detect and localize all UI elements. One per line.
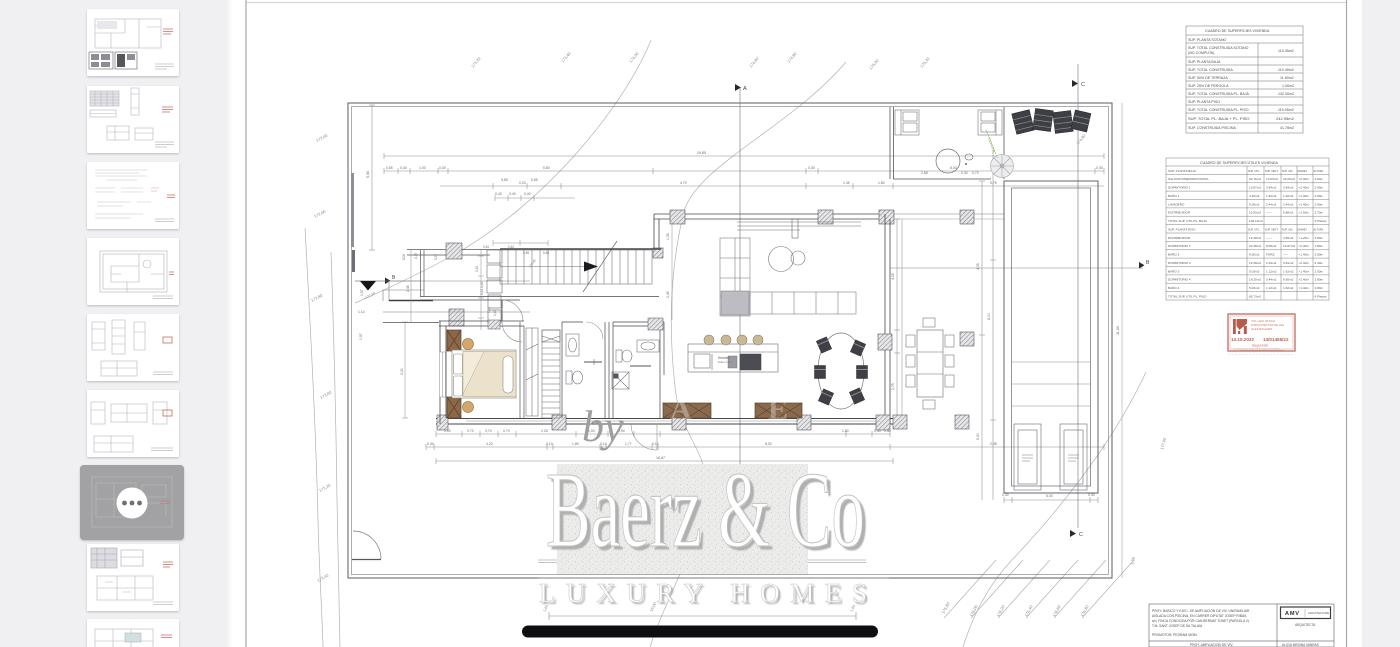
- svg-text:SUP. TOTAL PL. BAJA + PL. PISO: SUP. TOTAL PL. BAJA + PL. PISO: [1188, 116, 1249, 121]
- svg-text:LUXURY HOMES: LUXURY HOMES: [541, 580, 869, 610]
- svg-text:TOTAL SUP. UTIL PL. BAJA: TOTAL SUP. UTIL PL. BAJA: [1168, 219, 1208, 223]
- svg-text:C: C: [1079, 532, 1083, 538]
- svg-text:------: ------: [1266, 236, 1272, 240]
- svg-text:0,40: 0,40: [495, 192, 502, 196]
- svg-text:8,00: 8,00: [987, 313, 991, 320]
- svg-text:1.80m: 1.80m: [1315, 244, 1324, 248]
- svg-text:SUP. UTIL: SUP. UTIL: [1248, 228, 1260, 231]
- svg-text:2.80m: 2.80m: [1315, 186, 1324, 190]
- svg-text:2,33: 2,33: [541, 429, 548, 433]
- svg-text:5,75: 5,75: [990, 181, 997, 185]
- svg-text:5,85: 5,85: [523, 251, 529, 255]
- svg-text:0,70: 0,70: [467, 429, 474, 433]
- svg-text:by: by: [582, 402, 624, 451]
- svg-text:174,80: 174,80: [786, 50, 798, 63]
- svg-text:1.12m2: 1.12m2: [1266, 269, 1277, 273]
- svg-text:103.14m2: 103.14m2: [1249, 219, 1263, 223]
- svg-text:------: ------: [1266, 211, 1272, 215]
- svg-text:8,30: 8,30: [765, 442, 772, 446]
- svg-text:3.84m2: 3.84m2: [1283, 186, 1294, 190]
- svg-text:PROY: BASICO Y EJEC. DE AMPLIA: PROY: BASICO Y EJEC. DE AMPLIACION DE VI…: [1152, 609, 1250, 613]
- svg-text:BAÑO 4: BAÑO 4: [1168, 285, 1180, 290]
- svg-text:DISTRIBUIDOR: DISTRIBUIDOR: [1168, 236, 1191, 240]
- svg-text:>1.40m: >1.40m: [1299, 194, 1310, 198]
- svg-text:SALON/COMEDOR/COCINA: SALON/COMEDOR/COCINA: [1168, 177, 1209, 181]
- svg-text:0,10: 0,10: [652, 442, 659, 446]
- svg-text:1,35: 1,35: [1129, 556, 1136, 566]
- svg-text:BAÑO 1: BAÑO 1: [1168, 193, 1180, 198]
- svg-text:175,20: 175,20: [919, 55, 931, 68]
- svg-text:>2.40m: >2.40m: [1299, 244, 1310, 248]
- svg-text:>2.40m: >2.40m: [1299, 278, 1310, 282]
- svg-text:SUP. ILM.: SUP. ILM.: [1282, 228, 1293, 231]
- svg-text:koken 3.6m: koken 3.6m: [718, 360, 731, 364]
- svg-text:13.93m2: 13.93m2: [1266, 177, 1278, 181]
- svg-text:85.73m2: 85.73m2: [1249, 294, 1261, 298]
- svg-text:ILLES BALEARS: ILLES BALEARS: [1251, 327, 1272, 331]
- svg-text:23.20m2: 23.20m2: [1283, 177, 1295, 181]
- svg-text:177,00: 177,00: [1159, 436, 1167, 450]
- svg-text:0,24 0,40: 0,24 0,40: [480, 281, 484, 295]
- svg-text:2,40: 2,40: [493, 310, 497, 316]
- svg-text:DIAMET: DIAMET: [1298, 170, 1308, 173]
- svg-text:1,35: 1,35: [666, 233, 670, 240]
- svg-text:0,55: 0,55: [386, 166, 393, 170]
- svg-text:ESCALERA: ESCALERA: [987, 137, 996, 153]
- svg-text:DORMITORIO 3: DORMITORIO 3: [1168, 261, 1191, 265]
- svg-text:172,60: 172,60: [313, 208, 327, 219]
- svg-text:4.59m2: 4.59m2: [1283, 236, 1294, 240]
- svg-text:E: E: [768, 393, 788, 426]
- svg-text:19,85: 19,85: [697, 151, 706, 155]
- svg-text:0,57: 0,57: [359, 333, 363, 340]
- svg-text:0,57: 0,57: [360, 289, 364, 296]
- svg-text:DIAMET: DIAMET: [1298, 228, 1308, 231]
- svg-text:11.90m2: 11.90m2: [1280, 76, 1294, 80]
- svg-text:2.80m: 2.80m: [1315, 278, 1324, 282]
- svg-text:3.44m2: 3.44m2: [1266, 278, 1277, 282]
- svg-text:Baerz & Co: Baerz & Co: [546, 451, 865, 570]
- svg-text:110.35m2: 110.35m2: [1278, 49, 1294, 53]
- svg-text:4,35: 4,35: [891, 273, 895, 280]
- svg-text:SUP. PLANTA PISO: SUP. PLANTA PISO: [1168, 227, 1196, 231]
- svg-text:1.62m2: 1.62m2: [1266, 194, 1277, 198]
- svg-text:173,20: 173,20: [470, 55, 482, 68]
- svg-text:6 Plazas: 6 Plazas: [1315, 294, 1327, 298]
- svg-text:5,85: 5,85: [501, 178, 508, 182]
- svg-text:2.24m2: 2.24m2: [1266, 261, 1277, 265]
- svg-text:1,80: 1,80: [572, 442, 579, 446]
- svg-text:2.80m: 2.80m: [1315, 286, 1324, 290]
- svg-text:4.29m2: 4.29m2: [1249, 194, 1260, 198]
- svg-text:1,51: 1,51: [487, 307, 491, 313]
- svg-text:8,30: 8,30: [950, 166, 957, 170]
- svg-text:2,68: 2,68: [921, 171, 928, 175]
- svg-text:0,30: 0,30: [961, 171, 968, 175]
- svg-text:13.10.2022: 13.10.2022: [1231, 337, 1254, 342]
- svg-text:8.05m2: 8.05m2: [1249, 253, 1260, 257]
- svg-text:110.05m2: 110.05m2: [1278, 108, 1294, 112]
- svg-text:0,70: 0,70: [503, 429, 510, 433]
- svg-text:TOTAL SUP. UTIL PL. PISO: TOTAL SUP. UTIL PL. PISO: [1168, 294, 1207, 298]
- svg-text:2.70m: 2.70m: [1315, 211, 1324, 215]
- svg-text:1.62m2: 1.62m2: [1283, 194, 1294, 198]
- svg-text:B: B: [392, 275, 396, 281]
- svg-text:173,00: 173,00: [319, 389, 333, 400]
- svg-text:0,30: 0,30: [439, 166, 446, 170]
- svg-text:>1.25m: >1.25m: [1299, 236, 1310, 240]
- svg-text:5,00: 5,00: [1046, 494, 1053, 498]
- svg-text:SUP. UTIL: SUP. UTIL: [1248, 170, 1260, 173]
- svg-text:5,85: 5,85: [543, 251, 549, 255]
- svg-text:6.85m2: 6.85m2: [1283, 278, 1294, 282]
- svg-text:41.78m2: 41.78m2: [1280, 126, 1294, 130]
- svg-text:5,50: 5,50: [366, 171, 370, 178]
- svg-text:>1.40m: >1.40m: [1299, 202, 1310, 206]
- svg-text:0,10: 0,10: [546, 442, 553, 446]
- svg-text:AISLADA CON PISCINA, EN CARRE: AISLADA CON PISCINA, EN CARRER DIPUTAT J…: [1152, 614, 1247, 618]
- svg-text:>2.40m: >2.40m: [1299, 261, 1310, 265]
- svg-text:SUP. CONSTRUIDA PISCINA: SUP. CONSTRUIDA PISCINA: [1188, 126, 1236, 130]
- svg-text:242.95m2: 242.95m2: [1276, 116, 1295, 121]
- svg-text:0,40: 0,40: [475, 266, 479, 272]
- svg-text:11,00: 11,00: [1116, 326, 1120, 335]
- svg-text:132.30m2: 132.30m2: [1278, 92, 1294, 96]
- svg-text:12.48m2: 12.48m2: [1249, 236, 1261, 240]
- svg-text:SUP. TOTAL CONSTRUIDA PL. BAJA: SUP. TOTAL CONSTRUIDA PL. BAJA: [1188, 92, 1250, 96]
- svg-text:1,35: 1,35: [843, 181, 850, 185]
- svg-text:5,80: 5,80: [543, 166, 550, 170]
- svg-text:2 Plazas: 2 Plazas: [1315, 219, 1327, 223]
- svg-text:A: A: [670, 393, 692, 426]
- svg-text:0,57: 0,57: [434, 254, 438, 260]
- svg-text:0,70: 0,70: [485, 429, 492, 433]
- svg-text:SUP. PLANTA BAJA: SUP. PLANTA BAJA: [1188, 60, 1221, 64]
- svg-text:3.84m2: 3.84m2: [1266, 186, 1277, 190]
- svg-text:18.25m2: 18.25m2: [1249, 278, 1261, 282]
- svg-text:DORMITORIO 2: DORMITORIO 2: [1168, 244, 1191, 248]
- svg-text:5.03m2: 5.03m2: [1249, 269, 1260, 273]
- svg-text:0,30: 0,30: [427, 442, 434, 446]
- svg-text:1,77: 1,77: [625, 442, 632, 446]
- svg-text:0,30: 0,30: [1088, 493, 1095, 497]
- svg-text:>1.50m: >1.50m: [1299, 211, 1310, 215]
- svg-text:2,45: 2,45: [666, 291, 670, 298]
- svg-text:0,40: 0,40: [400, 166, 407, 170]
- svg-text:PROY. AMPLIACION DE VIV.: PROY. AMPLIACION DE VIV.: [1190, 643, 1233, 647]
- svg-text:0,40: 0,40: [509, 192, 516, 196]
- svg-text:>1.40m: >1.40m: [1299, 253, 1310, 257]
- svg-text:>1.40m: >1.40m: [1299, 269, 1310, 273]
- svg-text:-----: -----: [1283, 253, 1288, 257]
- svg-text:12.38m2: 12.38m2: [1249, 261, 1261, 265]
- svg-text:BAÑO 2: BAÑO 2: [1168, 252, 1180, 257]
- svg-text:5,30: 5,30: [976, 433, 980, 440]
- svg-text:SUP. 50% DE TERRAZA: SUP. 50% DE TERRAZA: [1188, 76, 1228, 80]
- svg-text:SUP. VENT: SUP. VENT: [1265, 228, 1278, 231]
- svg-text:3.64m2: 3.64m2: [1283, 261, 1294, 265]
- svg-text:2.44m2: 2.44m2: [1266, 202, 1277, 206]
- svg-text:1,00: 1,00: [419, 166, 426, 170]
- svg-text:0,30: 0,30: [808, 166, 815, 170]
- svg-text:4,70: 4,70: [680, 181, 687, 185]
- svg-text:13.87m2: 13.87m2: [1249, 186, 1261, 190]
- svg-text:24.38m2: 24.38m2: [1249, 244, 1261, 248]
- svg-text:13/01455/22: 13/01455/22: [1263, 337, 1289, 342]
- svg-text:0,30: 0,30: [1096, 166, 1103, 170]
- svg-text:SUP. TOTAL CONSTRUIDA: SUP. TOTAL CONSTRUIDA: [1188, 68, 1233, 72]
- svg-text:B: B: [1146, 260, 1150, 266]
- svg-text:5.09m2: 5.09m2: [1249, 202, 1260, 206]
- svg-text:175,00: 175,00: [868, 57, 880, 70]
- svg-text:5.03m2: 5.03m2: [1249, 286, 1260, 290]
- svg-text:LAVADERO: LAVADERO: [1168, 202, 1185, 206]
- svg-text:2.80m: 2.80m: [1315, 236, 1324, 240]
- svg-text:CUADRO DE SUPERFICIES VIVIENDA: CUADRO DE SUPERFICIES VIVIENDA: [1205, 29, 1270, 33]
- svg-text:2.80m: 2.80m: [1315, 253, 1324, 257]
- svg-text:1.00m2: 1.00m2: [1282, 84, 1294, 88]
- svg-text:8.05m2: 8.05m2: [1266, 244, 1277, 248]
- svg-text:1,80: 1,80: [842, 429, 849, 433]
- svg-text:173,20: 173,20: [318, 482, 332, 493]
- svg-text:C: C: [1081, 82, 1085, 88]
- svg-text:Cal observar els requisits de: Cal observar els requisits de seguretat …: [1233, 348, 1281, 351]
- svg-text:4,20: 4,20: [486, 442, 493, 446]
- svg-text:DORMITORIO 1: DORMITORIO 1: [1168, 186, 1191, 190]
- svg-text:FORZ.: FORZ.: [1266, 253, 1275, 257]
- svg-text:2.80m: 2.80m: [1315, 177, 1324, 181]
- svg-text:1.12m2: 1.12m2: [1266, 286, 1277, 290]
- svg-text:0,72: 0,72: [972, 171, 979, 175]
- svg-text:SUP. PLANTA SOTANO: SUP. PLANTA SOTANO: [1188, 38, 1227, 42]
- svg-text:Seguretat: Seguretat: [1252, 344, 1268, 348]
- svg-text:+172,80: +172,80: [363, 291, 376, 301]
- svg-text:CUADRO DE SUPERFICIES ÚTILES V: CUADRO DE SUPERFICIES ÚTILES VIVIENDA: [1200, 160, 1278, 165]
- svg-text:1,80: 1,80: [878, 181, 885, 185]
- svg-text:s/n, FINCA CONOCIDA POR CAN BE: s/n, FINCA CONOCIDA POR CAN BERNAT TUNET…: [1152, 619, 1249, 623]
- svg-text:A: A: [743, 86, 747, 92]
- svg-text:SUP. 25% DE PERGOLA: SUP. 25% DE PERGOLA: [1188, 84, 1229, 88]
- svg-text:SUP. TOTAL CONSTRUIDA SOTANO: SUP. TOTAL CONSTRUIDA SOTANO: [1188, 46, 1249, 50]
- svg-text:DORMITORIO 4: DORMITORIO 4: [1168, 278, 1191, 282]
- svg-text:SUP. TOTAL CONSTRUIDA PL. PISO: SUP. TOTAL CONSTRUIDA PL. PISO: [1188, 108, 1249, 112]
- svg-text:62.15m2: 62.15m2: [1249, 177, 1261, 181]
- svg-text:T.M. SANT JOSEP DE SA TALAIA: T.M. SANT JOSEP DE SA TALAIA: [1152, 624, 1203, 628]
- svg-text:173,40: 173,40: [316, 572, 330, 583]
- svg-text:ALTURA: ALTURA: [1314, 228, 1324, 231]
- svg-text:ALICIA MEDINA VANRAS: ALICIA MEDINA VANRAS: [1282, 643, 1319, 647]
- svg-text:6,00: 6,00: [402, 254, 406, 260]
- svg-text:SUP. ILM.: SUP. ILM.: [1282, 170, 1293, 173]
- svg-text:>2.40m: >2.40m: [1299, 177, 1310, 181]
- svg-text:0,30: 0,30: [1002, 493, 1009, 497]
- svg-text:ARQUITECTA: ARQUITECTA: [1295, 623, 1316, 627]
- svg-text:2.40m: 2.40m: [1315, 261, 1324, 265]
- svg-text:AMV: AMV: [1285, 611, 1300, 617]
- svg-text:172,40: 172,40: [315, 132, 329, 143]
- svg-text:174,60: 174,60: [748, 55, 760, 68]
- svg-text:174,80: 174,80: [1075, 132, 1087, 145]
- svg-text:3,30: 3,30: [400, 368, 404, 375]
- svg-text:2.44m2: 2.44m2: [1283, 202, 1294, 206]
- svg-text:1,14: 1,14: [358, 310, 365, 314]
- svg-text:2.50m: 2.50m: [1315, 269, 1324, 273]
- svg-text:110.49m2: 110.49m2: [1278, 68, 1294, 72]
- svg-text:173,40: 173,40: [560, 50, 572, 63]
- svg-text:0,40: 0,40: [508, 245, 514, 249]
- svg-text:5,85: 5,85: [531, 178, 538, 182]
- svg-text:>2.40m: >2.40m: [1299, 186, 1310, 190]
- svg-text:DISTRIBUIDOR: DISTRIBUIDOR: [1168, 211, 1191, 215]
- svg-text:SUP. VENT: SUP. VENT: [1265, 170, 1278, 173]
- svg-text:0,40: 0,40: [524, 192, 531, 196]
- svg-text:2,98: 2,98: [990, 442, 997, 446]
- svg-text:174,40: 174,40: [528, 258, 537, 268]
- svg-text:BAÑO 3: BAÑO 3: [1168, 268, 1180, 273]
- svg-text:14.87m2: 14.87m2: [1283, 244, 1295, 248]
- svg-text:174,00: 174,00: [628, 50, 640, 63]
- svg-text:>1.40m: >1.40m: [1299, 286, 1310, 290]
- svg-text:2.50m: 2.50m: [1315, 202, 1324, 206]
- svg-text:6.88m2: 6.88m2: [1283, 211, 1294, 215]
- svg-text:10.52m2: 10.52m2: [1249, 211, 1261, 215]
- svg-text:SUP. PLANTA BAJA: SUP. PLANTA BAJA: [1168, 169, 1197, 173]
- svg-text:1.62m2: 1.62m2: [1283, 269, 1294, 273]
- svg-text:SUP. PLANTA PISO: SUP. PLANTA PISO: [1188, 100, 1220, 104]
- svg-text:ARCHITECTURE: ARCHITECTURE: [1308, 611, 1329, 615]
- svg-text:Keuken: Keuken: [718, 356, 730, 360]
- svg-text:2,75: 2,75: [891, 383, 895, 390]
- svg-text:0,20: 0,20: [519, 181, 526, 185]
- svg-text:4,35: 4,35: [976, 263, 980, 270]
- svg-text:172,80: 172,80: [310, 292, 324, 303]
- svg-text:ALTURA: ALTURA: [1314, 170, 1324, 173]
- svg-text:2.80m: 2.80m: [1315, 194, 1324, 198]
- svg-text:PROMOTOR: PEDRAM MOIN: PROMOTOR: PEDRAM MOIN: [1152, 633, 1197, 637]
- svg-text:1.62m2: 1.62m2: [1283, 286, 1294, 290]
- svg-text:(NO COMPUTA): (NO COMPUTA): [1188, 51, 1214, 55]
- svg-text:0,19: 0,19: [414, 253, 418, 259]
- svg-text:0,40: 0,40: [483, 245, 489, 249]
- svg-text:2,45: 2,45: [406, 285, 410, 292]
